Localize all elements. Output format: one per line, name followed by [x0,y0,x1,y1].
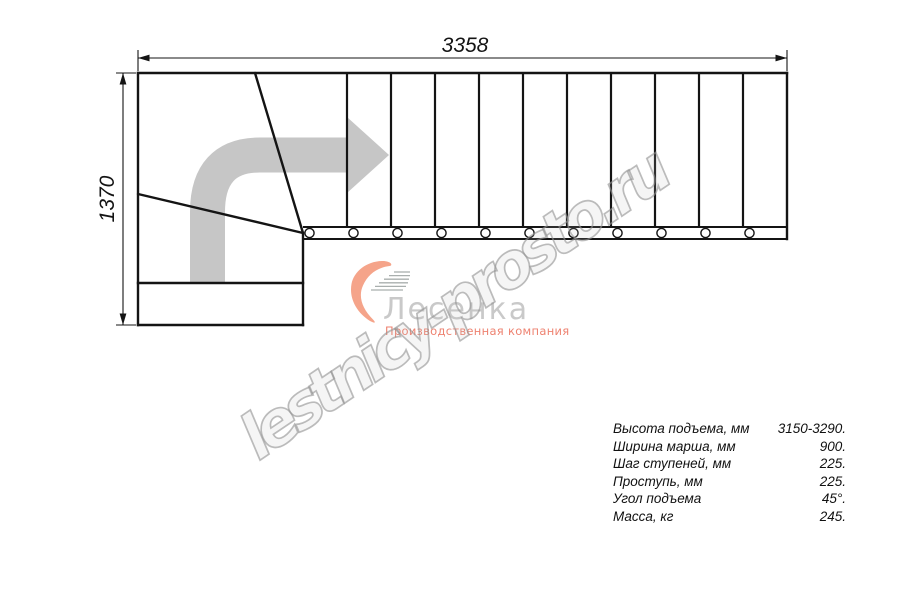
left-dimension-arrow-bottom [120,314,127,326]
baluster-circles [305,228,754,237]
spec-row: Высота подъема, мм 3150-3290. [613,420,846,438]
baluster-circle [481,228,490,237]
logo-stair-lines [371,272,410,290]
dimension-left: 1370 [96,73,136,325]
baluster-circle [613,228,622,237]
spec-value: 225. [820,473,846,491]
logo-subtitle: Производственная компания [385,324,570,338]
spec-label: Масса, кг [613,508,673,526]
logo-name: Лесенка [383,292,529,327]
baluster-circle [349,228,358,237]
direction-arrow-shaft [208,155,348,283]
spec-row: Масса, кг 245. [613,508,846,526]
stringer-strip [303,227,787,239]
spec-label: Шаг ступеней, мм [613,455,731,473]
tread-lines [347,73,743,227]
baluster-circle [305,228,314,237]
top-dimension-arrow-right [776,55,788,62]
spec-value: 245. [820,508,846,526]
baluster-circle [701,228,710,237]
spec-label: Проступь, мм [613,473,703,491]
dimension-top: 3358 [138,34,787,71]
left-dimension-arrow-top [120,73,127,85]
spec-value: 3150-3290. [778,420,846,438]
baluster-circle [525,228,534,237]
top-dimension-label: 3358 [442,34,489,57]
spec-value: 225. [820,455,846,473]
baluster-circle [437,228,446,237]
top-dimension-arrow-left [138,55,150,62]
spec-value: 900. [820,438,846,456]
spec-value: 45°. [822,490,846,508]
left-dimension-label: 1370 [96,175,119,222]
baluster-circle [745,228,754,237]
spec-row: Шаг ступеней, мм 225. [613,455,846,473]
spec-row: Проступь, мм 225. [613,473,846,491]
baluster-circle [393,228,402,237]
spec-label: Высота подъема, мм [613,420,749,438]
spec-row: Угол подъема 45°. [613,490,846,508]
stair-outline [138,73,787,325]
page: { "drawing": { "top_dimension": "3358", … [0,0,900,600]
baluster-circle [657,228,666,237]
left-dimension-extension-lines [116,73,136,325]
spec-label: Угол подъема [613,490,701,508]
direction-arrow-head [347,117,389,193]
baluster-circle [569,228,578,237]
spec-row: Ширина марша, мм 900. [613,438,846,456]
spec-label: Ширина марша, мм [613,438,736,456]
specs-table: Высота подъема, мм 3150-3290. Ширина мар… [613,420,846,525]
